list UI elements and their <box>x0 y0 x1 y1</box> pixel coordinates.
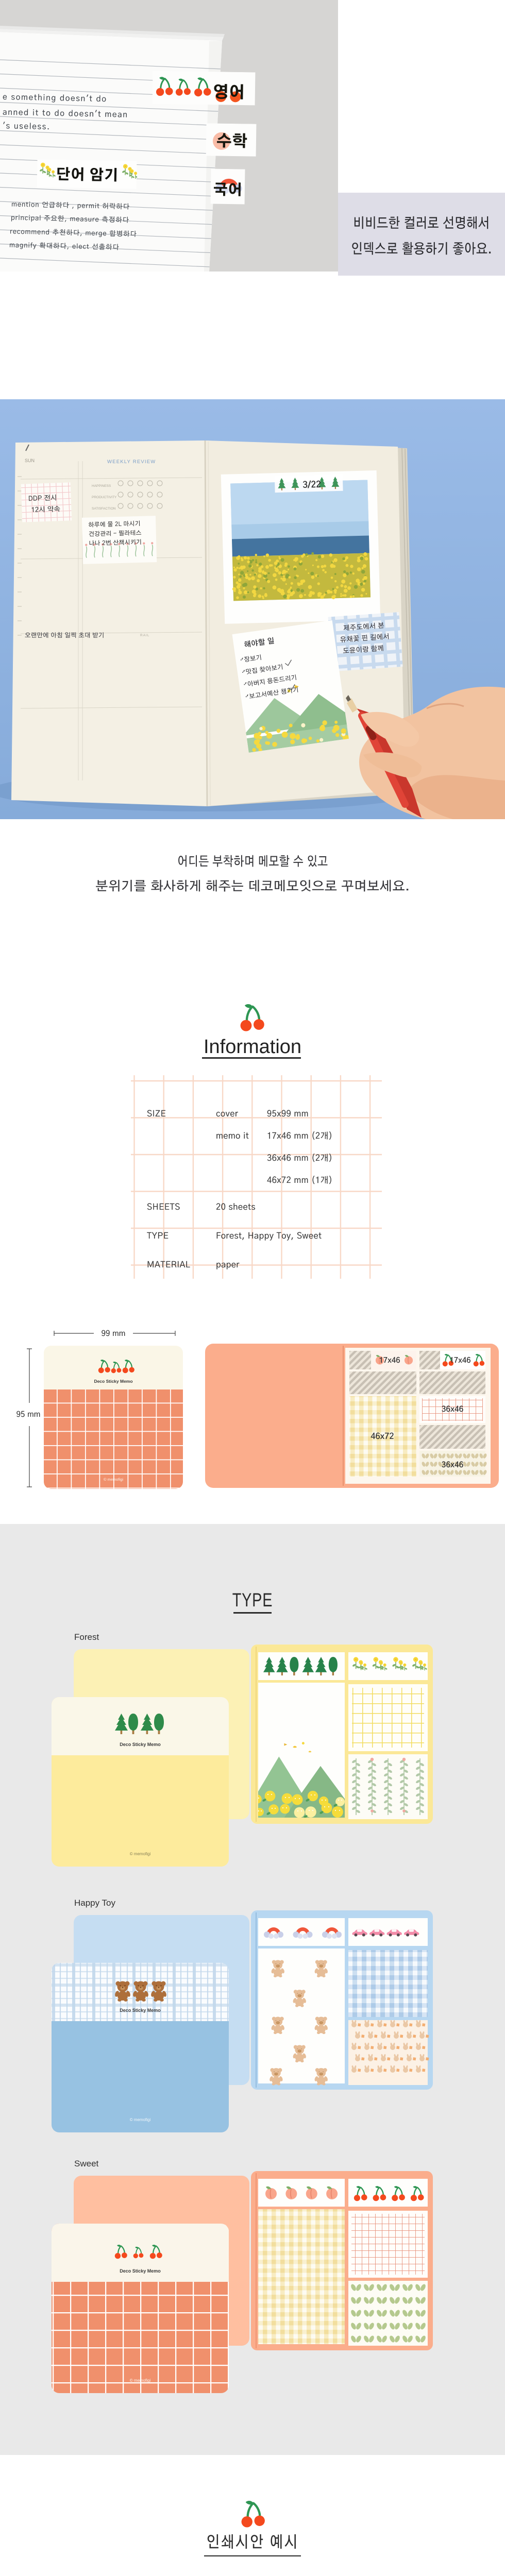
svg-text:Deco Sticky Memo: Deco Sticky Memo <box>120 2268 161 2274</box>
svg-text:SUN: SUN <box>25 458 35 463</box>
svg-text:Deco Sticky Memo: Deco Sticky Memo <box>120 2008 161 2013</box>
svg-text:Deco Sticky Memo: Deco Sticky Memo <box>94 1379 132 1384</box>
svg-text:WEEKLY REVIEW: WEEKLY REVIEW <box>107 459 156 465</box>
svg-text:© memofigi: © memofigi <box>130 1852 151 1856</box>
svg-text:© memofigi: © memofigi <box>130 2378 151 2383</box>
svg-text:RAIL: RAIL <box>140 634 149 637</box>
svg-text:SATISFACTION: SATISFACTION <box>92 507 116 511</box>
svg-text:Deco Sticky Memo: Deco Sticky Memo <box>120 1742 161 1747</box>
svg-text:© memofigi: © memofigi <box>130 2117 151 2122</box>
svg-text:© memofigi: © memofigi <box>104 1477 123 1482</box>
svg-text:HAPPINESS: HAPPINESS <box>92 484 111 488</box>
svg-text:PRODUCTIVITY: PRODUCTIVITY <box>92 496 117 499</box>
